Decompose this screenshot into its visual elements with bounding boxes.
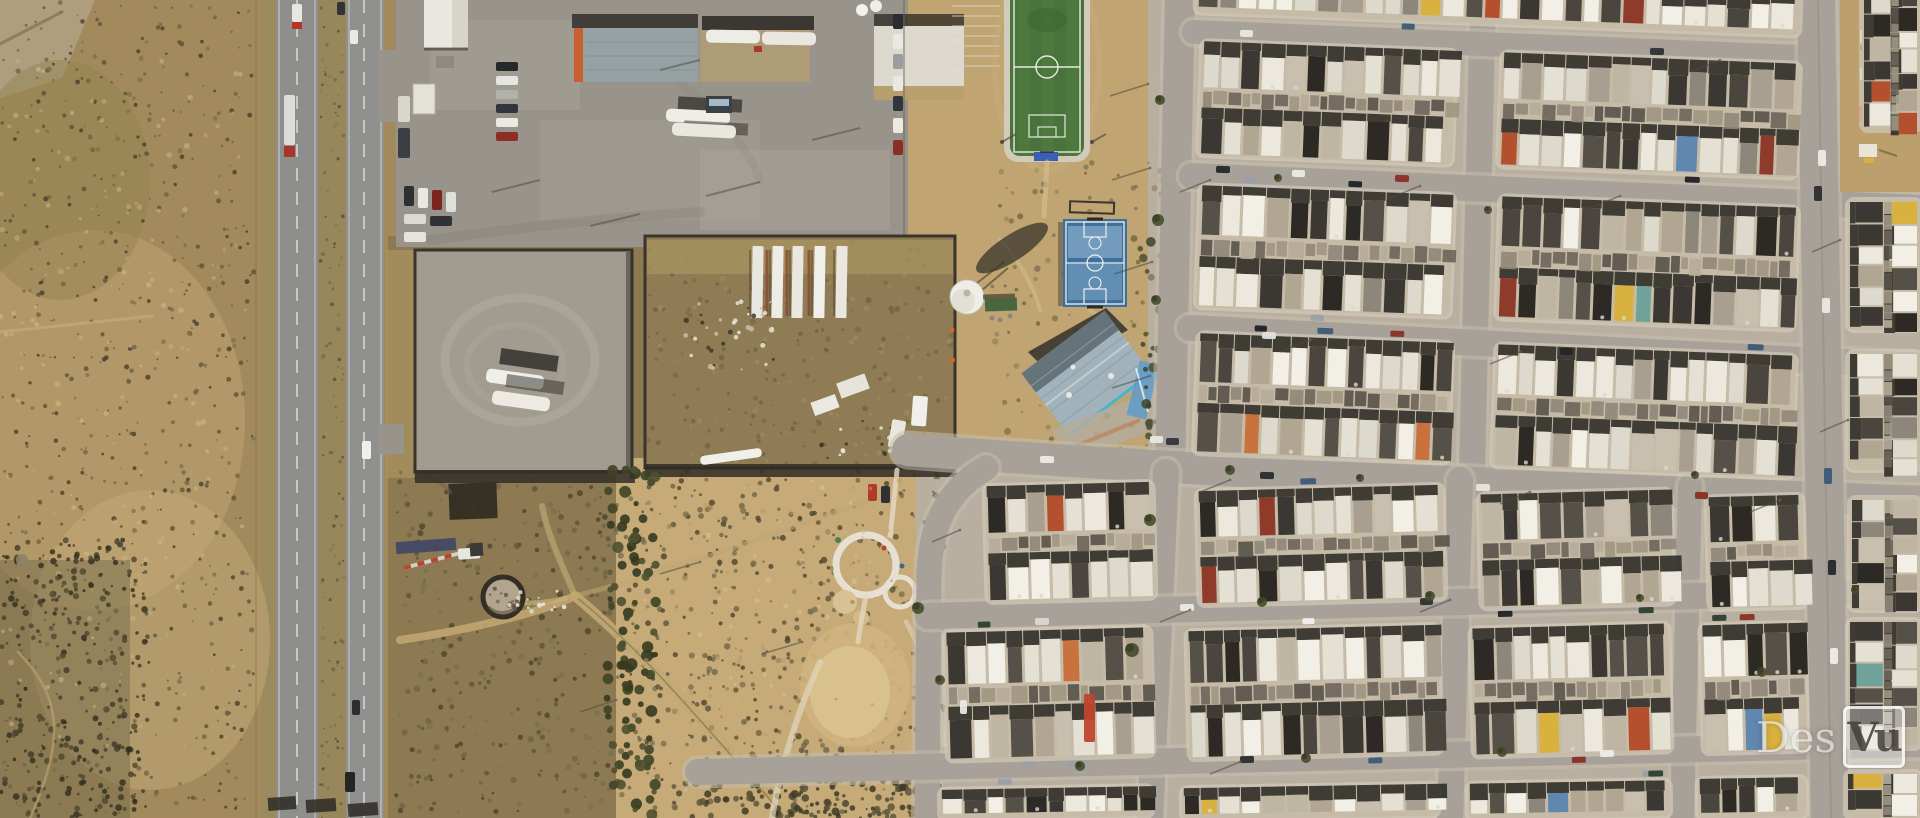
layer-highway xyxy=(268,0,384,818)
housing-block xyxy=(1489,334,1801,481)
housing-block xyxy=(1859,0,1920,135)
aerial-photo-stage: Des Vu xyxy=(0,0,1920,818)
housing-block xyxy=(1845,197,1920,333)
layer-storage-yards xyxy=(415,236,957,503)
housing-block xyxy=(1845,349,1920,477)
housing-block xyxy=(1179,781,1448,818)
housing-block xyxy=(1193,475,1451,609)
housing-block xyxy=(1703,492,1813,613)
housing-block xyxy=(1467,620,1675,765)
housing-block xyxy=(1493,193,1802,333)
housing-block xyxy=(1843,769,1920,818)
housing-block xyxy=(1847,495,1920,613)
housing-block xyxy=(941,617,1157,770)
housing-block xyxy=(1191,323,1457,466)
housing-block xyxy=(1845,617,1920,751)
aerial-drone-photo xyxy=(0,0,1920,818)
housing-block xyxy=(1695,774,1810,818)
housing-block xyxy=(1475,486,1683,617)
housing-block xyxy=(1192,175,1458,326)
housing-block xyxy=(981,479,1158,606)
housing-block xyxy=(1183,615,1448,769)
housing-block xyxy=(1697,613,1811,757)
housing-block xyxy=(1495,49,1804,187)
housing-block xyxy=(1195,38,1462,168)
